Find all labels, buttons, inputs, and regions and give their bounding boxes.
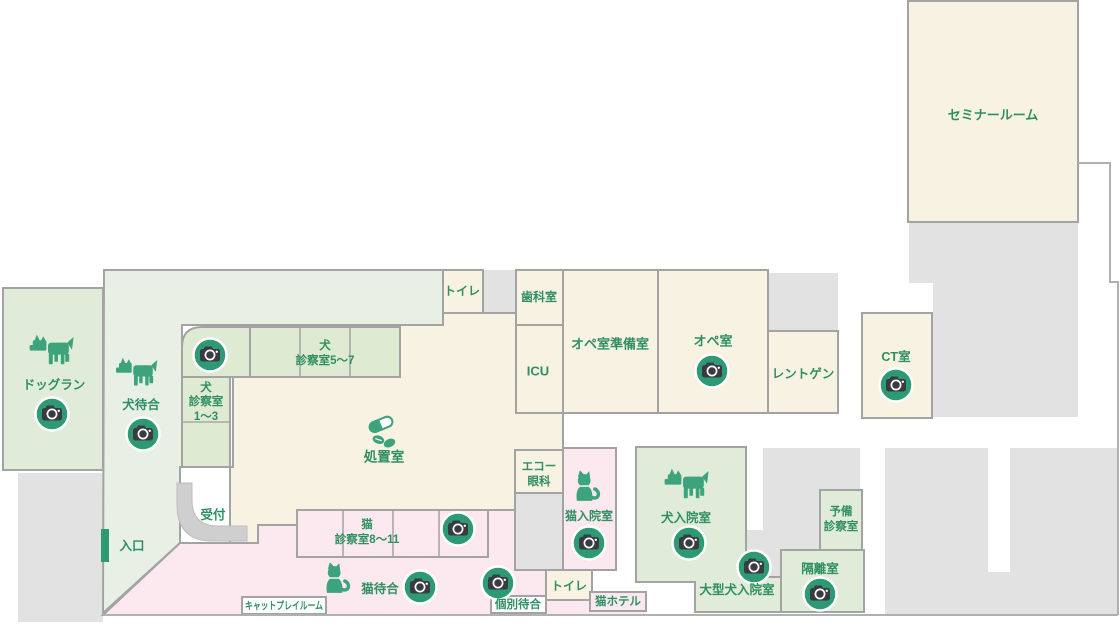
label-toilet-top: トイレ <box>444 284 480 298</box>
label-toilet-bottom: トイレ <box>551 579 587 593</box>
label-cat-inpatient: 猫入院室 <box>565 508 613 523</box>
gray-block-bottom-left <box>18 473 103 622</box>
camera-icon-ope[interactable] <box>696 355 729 388</box>
label-dog-wait: 犬待合 <box>121 397 160 412</box>
camera-icon-cat-inpatient[interactable] <box>573 527 606 560</box>
gray-block-beside-toilet <box>483 270 516 313</box>
floor-plan-canvas: セミナールーム トイレ 歯科室 ICU オペ室準備室 オペ室 レントゲン CT室… <box>0 0 1120 630</box>
entrance-marker <box>101 529 109 562</box>
gray-block-above-xray <box>768 273 838 331</box>
label-cat-wait: 猫待合 <box>361 581 399 596</box>
white-gap-bottom-right <box>988 448 1010 572</box>
label-echo-line1: エコー <box>522 461 557 473</box>
label-cat-exam-line2: 診察室8〜11 <box>335 532 400 546</box>
label-dog-exam-5-7-line1: 犬 <box>319 338 331 352</box>
label-spare-exam-line2: 診察室 <box>824 519 859 533</box>
camera-icon-ct[interactable] <box>880 369 913 402</box>
camera-icon-cat-wait[interactable] <box>404 571 437 604</box>
label-dog-inpatient: 犬入院室 <box>660 510 712 525</box>
label-seminar: セミナールーム <box>948 108 1039 123</box>
camera-icon-individual-wait[interactable] <box>482 567 515 600</box>
label-dental: 歯科室 <box>521 289 557 304</box>
camera-icon-large-dog-inpatient[interactable] <box>738 551 771 584</box>
label-xray: レントゲン <box>772 366 835 381</box>
camera-icon-cat-exam[interactable] <box>442 513 475 546</box>
label-cat-hotel: 猫ホテル <box>595 594 641 608</box>
label-cat-play: キャットプレイルーム <box>245 599 323 612</box>
label-dog-exam-1-3-line3: 1〜3 <box>194 411 218 423</box>
camera-icon-isolation[interactable] <box>804 578 837 611</box>
label-isolation: 隔離室 <box>801 561 839 576</box>
label-ope-prep: オペ室準備室 <box>571 337 649 352</box>
gray-block-below-echo <box>515 493 563 570</box>
camera-icon-dogrun[interactable] <box>36 398 69 431</box>
label-treatment: 処置室 <box>363 449 405 465</box>
label-large-dog-inpatient: 大型犬入院室 <box>699 582 775 597</box>
label-entrance: 入口 <box>119 539 144 553</box>
room-dog-exam-5-7 <box>250 327 400 377</box>
room-spare-exam <box>820 490 862 550</box>
label-dog-exam-5-7-line2: 診察室5〜7 <box>296 353 355 367</box>
label-echo-line2: 眼科 <box>528 474 551 488</box>
label-dog-exam-1-3-line1: 犬 <box>200 380 212 394</box>
label-individual-wait: 個別待合 <box>494 597 541 611</box>
camera-icon-dog-exam[interactable] <box>194 339 227 372</box>
floor-plan-page: セミナールーム トイレ 歯科室 ICU オペ室準備室 オペ室 レントゲン CT室… <box>0 0 1120 630</box>
label-spare-exam-line1: 予備 <box>830 504 853 518</box>
label-ope: オペ室 <box>693 334 732 349</box>
gray-block-below-seminar <box>909 222 1078 417</box>
label-cat-exam-line1: 猫 <box>361 517 373 531</box>
label-icu: ICU <box>527 364 549 379</box>
label-dogrun: ドッグラン <box>23 377 86 392</box>
camera-icon-dog-inpatient[interactable] <box>673 527 706 560</box>
camera-icon-dog-wait[interactable] <box>127 418 160 451</box>
label-reception: 受付 <box>200 507 226 522</box>
label-ct: CT室 <box>881 349 911 364</box>
label-dog-exam-1-3-line2: 診察室 <box>189 394 224 408</box>
